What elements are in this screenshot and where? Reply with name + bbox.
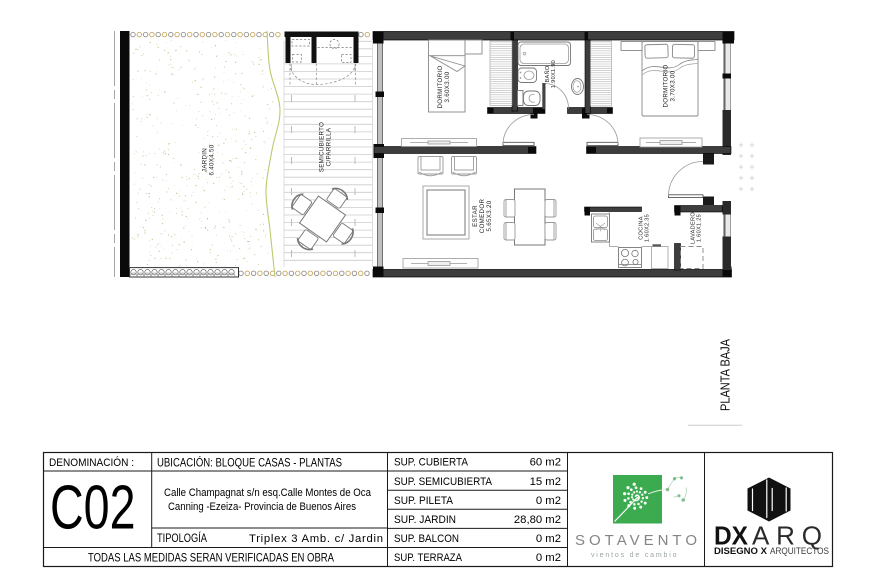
svg-text:0 m2: 0 m2 — [536, 533, 561, 545]
svg-text:DENOMINACIÓN :: DENOMINACIÓN : — [49, 456, 134, 469]
svg-text:TODAS LAS MEDIDAS SERAN VERIFI: TODAS LAS MEDIDAS SERAN VERIFICADAS EN O… — [88, 551, 334, 565]
svg-text:60 m2: 60 m2 — [530, 457, 561, 469]
svg-text:PLANTA BAJA: PLANTA BAJA — [718, 339, 733, 411]
svg-text:15 m2: 15 m2 — [530, 476, 561, 488]
svg-text:3.70X3.00: 3.70X3.00 — [670, 70, 677, 101]
svg-text:SEMICUBIERTO: SEMICUBIERTO — [318, 122, 325, 172]
svg-text:LAVADERO: LAVADERO — [690, 212, 696, 244]
svg-text:DORMITORIO: DORMITORIO — [437, 65, 444, 108]
svg-text:SUP. TERRAZA: SUP. TERRAZA — [394, 552, 462, 564]
svg-text:SUP. BALCON: SUP. BALCON — [394, 533, 459, 545]
svg-text:SUP. SEMICUBIERTA: SUP. SEMICUBIERTA — [394, 476, 492, 488]
svg-text:Canning -Ezeiza- Provincia de: Canning -Ezeiza- Provincia de Buenos Air… — [168, 501, 356, 513]
svg-text:TIPOLOGÍA: TIPOLOGÍA — [157, 531, 207, 545]
svg-text:UBICACIÓN: BLOQUE CASAS - PLAN: UBICACIÓN: BLOQUE CASAS - PLANTAS — [157, 456, 342, 470]
svg-text:SUP. JARDIN: SUP. JARDIN — [394, 514, 456, 526]
svg-text:COCINA: COCINA — [638, 216, 644, 240]
svg-text:BAÑO: BAÑO — [544, 65, 551, 82]
svg-text:5.65X3.20: 5.65X3.20 — [486, 200, 493, 231]
svg-text:COMEDOR: COMEDOR — [479, 199, 486, 234]
svg-text:3.60X3.00: 3.60X3.00 — [444, 71, 451, 102]
svg-text:vientos de cambio: vientos de cambio — [591, 552, 679, 559]
svg-text:JARDIN: JARDIN — [201, 148, 208, 172]
svg-text:ARQUITECTOS: ARQUITECTOS — [770, 546, 829, 556]
svg-text:Triplex 3 Amb. c/ Jardin: Triplex 3 Amb. c/ Jardin — [249, 533, 383, 545]
svg-text:1.60X1.25: 1.60X1.25 — [697, 214, 703, 242]
svg-text:SUP. CUBIERTA: SUP. CUBIERTA — [394, 457, 468, 469]
svg-text:28,80 m2: 28,80 m2 — [514, 514, 561, 526]
svg-text:DISEGNO X: DISEGNO X — [714, 546, 767, 556]
svg-text:1.60X2.35: 1.60X2.35 — [645, 214, 651, 242]
svg-text:DORMITORIO: DORMITORIO — [662, 64, 669, 107]
svg-text:ESTAR: ESTAR — [472, 205, 479, 227]
svg-text:1.90X1.90: 1.90X1.90 — [551, 60, 557, 88]
svg-text:C02: C02 — [50, 473, 136, 543]
svg-text:0 m2: 0 m2 — [536, 495, 561, 507]
svg-text:0 m2: 0 m2 — [536, 552, 561, 564]
svg-text:Calle Champagnat s/n esq.Calle: Calle Champagnat s/n esq.Calle Montes de… — [164, 487, 372, 499]
svg-text:6.40X4.50: 6.40X4.50 — [209, 144, 216, 175]
svg-text:SUP. PILETA: SUP. PILETA — [394, 495, 453, 507]
svg-text:C/PARRILLA: C/PARRILLA — [326, 127, 333, 166]
svg-text:SOTAVENTO: SOTAVENTO — [575, 532, 702, 549]
